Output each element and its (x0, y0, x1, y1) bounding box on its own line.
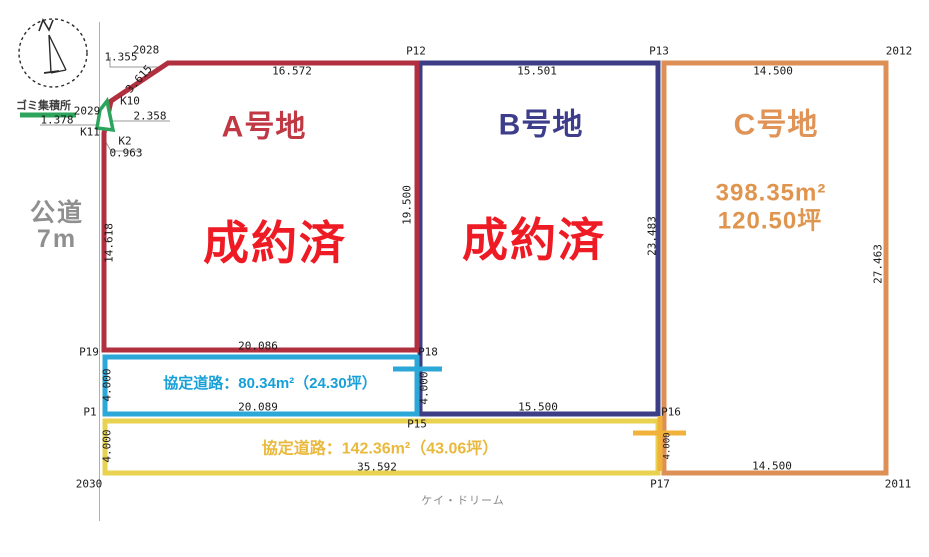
land-plot-map: 2028 1.355 3.615 K10 2029 2.358 K11 K2 0… (0, 0, 929, 557)
agreement-road-lower-label: 協定道路：142.36m²（43.06坪） (262, 442, 499, 459)
public-road-line1: 公道 (30, 200, 84, 226)
point-p18: P18 (418, 347, 438, 358)
point-p16: P16 (661, 407, 681, 418)
compass-icon (19, 19, 87, 87)
plot-b-name: B号地 (499, 109, 584, 141)
point-p19: P19 (79, 347, 99, 358)
dim-a-bottom: 20.086 (238, 341, 278, 352)
point-p12: P12 (406, 46, 426, 57)
dim-p16-side: 4.000 (664, 432, 673, 459)
point-k11: K11 (80, 127, 100, 138)
dim-c-top: 14.500 (753, 66, 793, 77)
plot-b-status: 成約済 (462, 216, 606, 264)
garbage-station-label: ゴミ集積所 (16, 97, 71, 113)
plot-c-area-tsubo: 120.50坪 (718, 208, 822, 233)
plot-a-status: 成約済 (203, 219, 347, 267)
plot-a-outline (104, 63, 417, 350)
agreement-road-upper-label: 協定道路：80.34m²（24.30坪） (163, 376, 376, 392)
point-k2: K2 (118, 136, 131, 147)
dim-ab: 19.500 (402, 185, 413, 225)
plot-c-area-m2: 398.35m² (716, 180, 827, 205)
dim-1355: 1.355 (104, 52, 137, 63)
dim-bc: 23.483 (647, 216, 658, 256)
dim-yellow-bottom: 35.592 (357, 462, 397, 473)
point-p13: P13 (649, 46, 669, 57)
dim-yellow-left: 4.000 (102, 429, 113, 462)
point-2030: 2030 (76, 479, 103, 490)
dim-a-top: 16.572 (272, 66, 312, 77)
credit-label: ケイ・ドリーム (421, 496, 504, 508)
dim-b-bottom: 15.500 (518, 402, 558, 413)
point-2011: 2011 (885, 479, 912, 490)
dim-cyan-right: 4.000 (419, 371, 430, 404)
dim-b-top: 15.501 (517, 66, 557, 77)
dim-c-right: 27.463 (873, 244, 884, 284)
point-2012: 2012 (886, 46, 913, 57)
dim-2358: 2.358 (133, 111, 166, 122)
point-2029: 2029 (74, 106, 101, 117)
dim-c-bottom: 14.500 (752, 461, 792, 472)
public-road-label: 公道 7m (30, 200, 84, 253)
plot-c-name: C号地 (734, 109, 819, 141)
dim-0963: 0.963 (109, 148, 142, 159)
dim-cyan-left: 4.000 (102, 368, 113, 401)
dim-a-left: 14.618 (104, 223, 115, 263)
dim-1378: 1.378 (40, 115, 73, 126)
point-p1: P1 (83, 407, 96, 418)
dim-cyan-bottom: 20.089 (238, 402, 278, 413)
point-k10: K10 (120, 96, 140, 107)
point-p15: P15 (407, 419, 427, 430)
point-p17: P17 (650, 479, 670, 490)
public-road-line2: 7m (30, 226, 84, 252)
plot-a-name: A号地 (222, 111, 307, 143)
